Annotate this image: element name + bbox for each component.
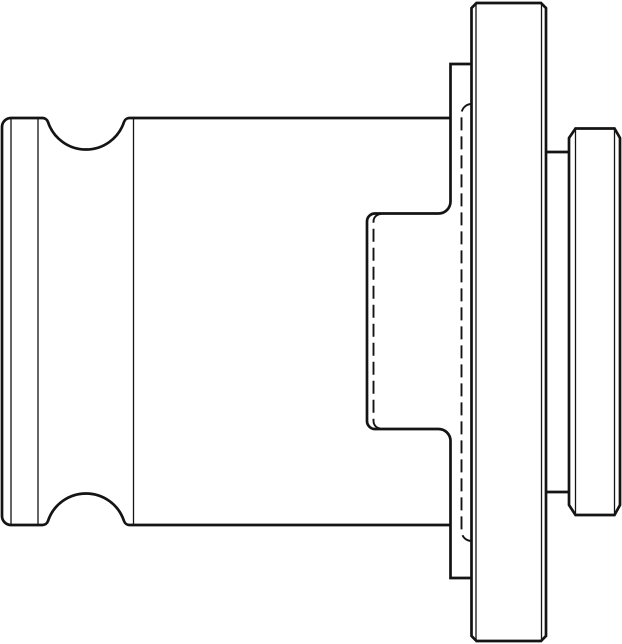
bottom-outline-with-groove [11,493,451,525]
tap-adapter-technical-drawing [0,0,622,644]
end-cylinder-outline [569,129,620,516]
flange-outline [472,3,547,641]
hidden-boss-bore-line [374,214,382,429]
top-outline-with-groove [11,118,451,150]
boss-outline [367,202,451,442]
drawing-canvas [0,0,622,644]
shank-end-cap [2,118,11,525]
hidden-flange-recess-line [462,104,472,541]
